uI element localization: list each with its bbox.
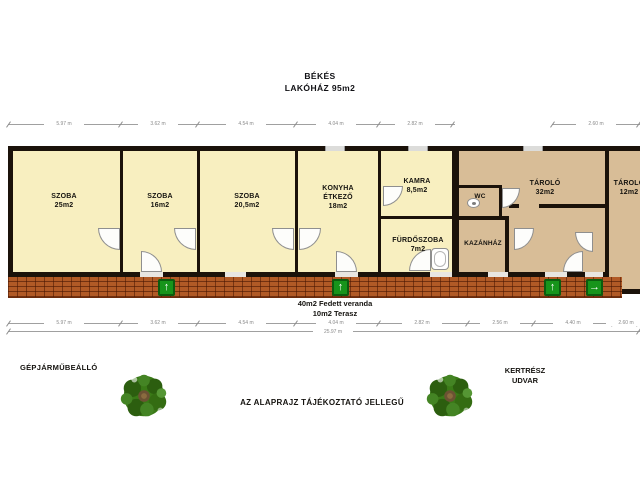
room-label-wc: WC [461, 193, 499, 201]
dimension-label: 3.62 m [138, 121, 178, 127]
entrance-arrow-right-icon: → [586, 279, 603, 296]
dimension-label: 4.40 m [553, 320, 593, 326]
wall [120, 151, 123, 272]
dimension-label: 2.56 m [480, 320, 520, 326]
garden-label: KERTRÉSZ UDVAR [493, 366, 557, 386]
room-label-tarolo-12: TÁROLÓ 12m2 [601, 179, 640, 197]
dimension-label-total: 25.97 m [313, 329, 353, 335]
window-opening [523, 146, 543, 151]
title-location: BÉKÉS [220, 70, 420, 82]
disclaimer-label: AZ ALAPRAJZ TÁJÉKOZTATÓ JELLEGŰ [222, 398, 422, 407]
tree-icon [421, 367, 479, 430]
wall [378, 151, 381, 272]
room-label-konyha: KONYHA ÉTKEZŐ 18m2 [300, 184, 376, 211]
carport-label: GÉPJÁRMŰBEÁLLÓ [20, 363, 98, 372]
floor-plan-page: BÉKÉS LAKÓHÁZ 95m2 5.97 m 3.62 m 4.54 m … [0, 0, 640, 480]
entrance-arrow-up-icon: ↑ [332, 279, 349, 296]
wall [539, 204, 605, 208]
room-label-furdoszoba: FÜRDŐSZOBA 7m2 [383, 236, 453, 254]
wall [459, 185, 502, 188]
room-label-kamra: KAMRA 8,5m2 [385, 177, 449, 195]
wall [381, 216, 452, 219]
room-label-szoba1: SZOBA 25m2 [24, 192, 104, 210]
wall [295, 151, 298, 272]
dimension-label: 2.82 m [395, 121, 435, 127]
wall [459, 216, 509, 220]
room-label-szoba3: SZOBA 20,5m2 [207, 192, 287, 210]
entrance-arrow-up-icon: ↑ [158, 279, 175, 296]
dimension-label: 2.60 m [576, 121, 616, 127]
dimension-label: 3.62 m [138, 320, 178, 326]
room-label-tarolo-32: TÁROLÓ 32m2 [509, 179, 581, 197]
dimension-label: 5.97 m [44, 121, 84, 127]
dimension-label: 2.60 m [606, 320, 640, 326]
dimension-label: 5.97 m [44, 320, 84, 326]
wall [8, 146, 640, 151]
wall [8, 151, 13, 277]
dimension-label: 4.04 m [316, 121, 356, 127]
dimension-label: 4.54 m [226, 320, 266, 326]
dimension-label: 4.54 m [226, 121, 266, 127]
window-opening [408, 146, 428, 151]
wall [197, 151, 200, 272]
storage-floor [457, 151, 640, 272]
entrance-arrow-up-icon: ↑ [544, 279, 561, 296]
room-label-szoba2: SZOBA 16m2 [125, 192, 195, 210]
veranda-caption: 40m2 Fedett veranda 10m2 Terasz [240, 299, 430, 319]
window-opening [325, 146, 345, 151]
dimension-label: 2.82 m [402, 320, 442, 326]
wall [452, 151, 459, 272]
dimension-label: 4.04 m [316, 320, 356, 326]
title-house-area: LAKÓHÁZ 95m2 [220, 82, 420, 94]
tree-icon [115, 367, 173, 430]
room-label-kazanhaz: KAZÁNHÁZ [455, 240, 511, 248]
page-title: BÉKÉS LAKÓHÁZ 95m2 [220, 70, 420, 94]
veranda-deck [8, 277, 622, 298]
wall [605, 151, 609, 289]
